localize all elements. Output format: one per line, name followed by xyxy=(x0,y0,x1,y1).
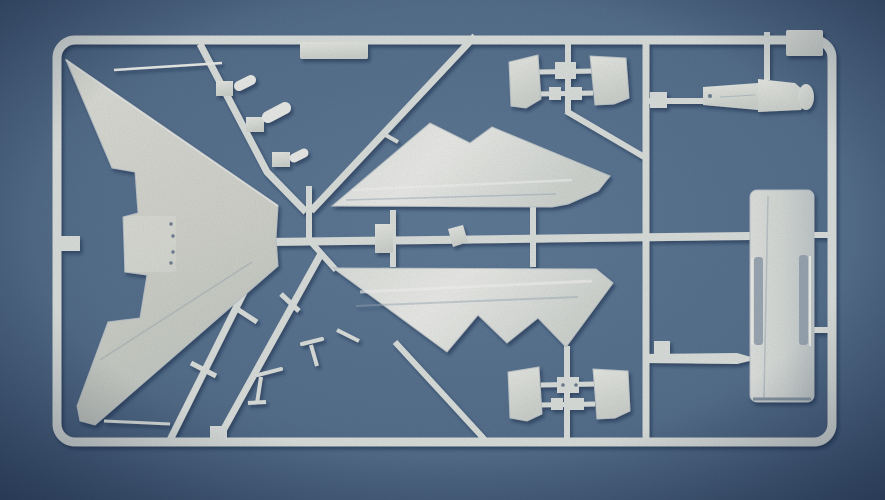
sprue-photo-canvas xyxy=(0,0,885,500)
photo-grain xyxy=(0,0,885,500)
model-kit-sprue-photo xyxy=(0,0,885,500)
photo-effects-layer xyxy=(0,0,885,500)
